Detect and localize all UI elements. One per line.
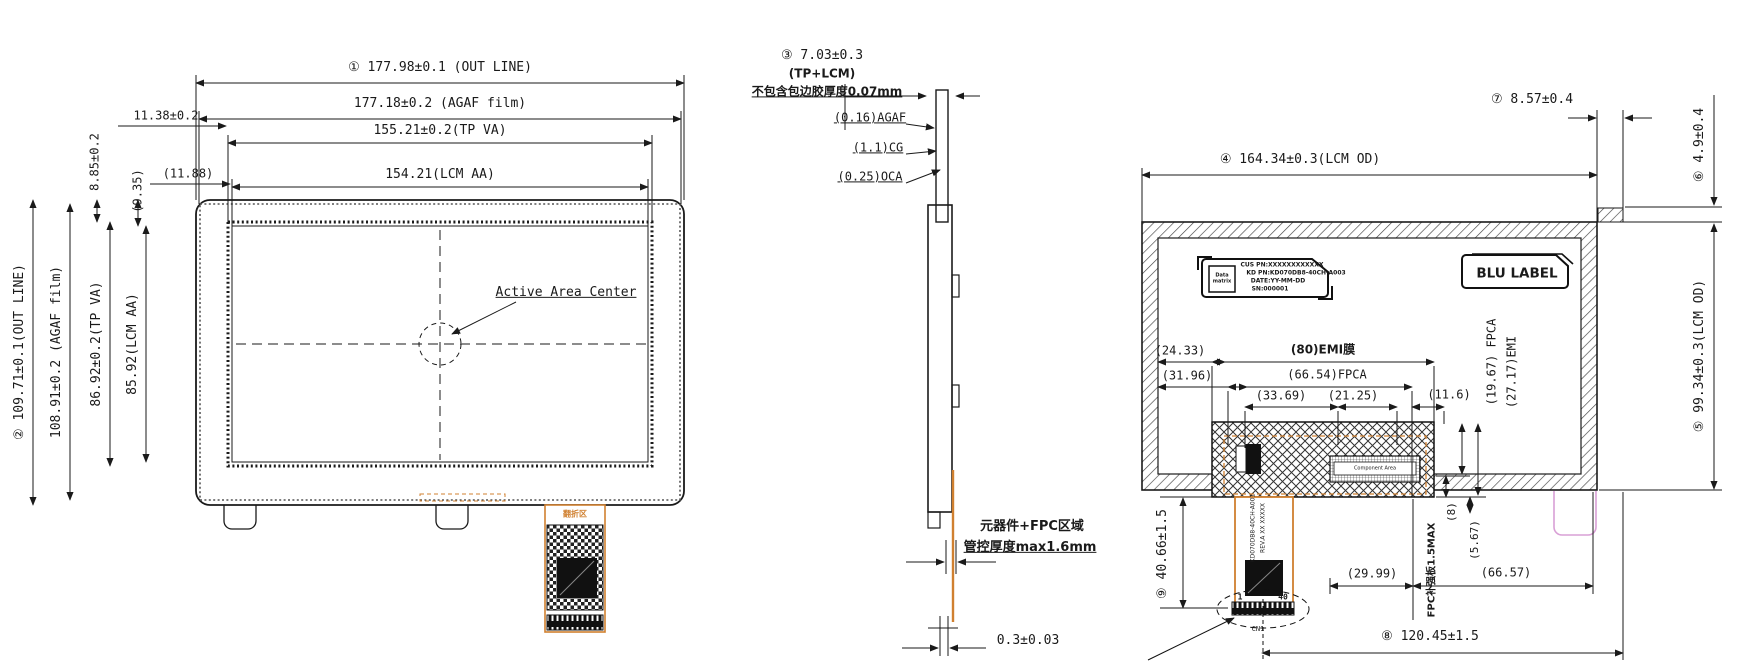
dim-emi-height: (27.17)EMI bbox=[1505, 336, 1518, 408]
fpc-zone-note-line1: 元器件+FPC区域 bbox=[980, 520, 1084, 534]
dim-back-fpc-offset: ⑧ 120.45±1.5 bbox=[1381, 630, 1479, 644]
dim-front-tpva-width: 155.21±0.2(TP VA) bbox=[373, 124, 506, 138]
dim-fpca-seg3: (11.6) bbox=[1427, 388, 1470, 401]
dim-back-bottom-seg2: (66.57) bbox=[1481, 566, 1532, 579]
dim-front-lcmaa-width: 154.21(LCM AA) bbox=[385, 168, 495, 182]
dim-front-agaf-width: 177.18±0.2 (AGAF film) bbox=[354, 97, 526, 111]
back-pink-tab bbox=[1554, 491, 1596, 535]
engineering-drawing-canvas: ① 177.98±0.1 (OUT LINE) 177.18±0.2 (AGAF… bbox=[0, 0, 1746, 665]
dim-back-lcm-od-height: ⑤ 99.34±0.3(LCM OD) bbox=[1693, 280, 1707, 433]
dim-fpca-seg2: (21.25) bbox=[1328, 389, 1379, 402]
stack-agaf-label: (0.16)AGAF bbox=[834, 111, 906, 124]
dim-front-aa-left-margin: (11.88) bbox=[163, 167, 214, 180]
dim-side-thickness: ③ 7.03±0.3 bbox=[781, 49, 863, 63]
label-cus-pn: CUS PN:XXXXXXXXXXXX bbox=[1240, 263, 1323, 270]
dim-front-outline-width: ① 177.98±0.1 (OUT LINE) bbox=[348, 61, 532, 75]
blu-label-text: BLU LABEL bbox=[1476, 267, 1557, 282]
fpc-zone-note-line2: 管控厚度max1.6mm bbox=[964, 541, 1097, 555]
datamatrix-placeholder: Data matrix bbox=[1210, 274, 1234, 285]
dim-back-lcm-od-width: ④ 164.34±0.3(LCM OD) bbox=[1220, 153, 1380, 167]
stack-oca-label: (0.25)OCA bbox=[837, 170, 902, 183]
dim-side-thickness-scope: (TP+LCM) bbox=[789, 67, 855, 80]
front-view-outline bbox=[196, 200, 684, 529]
side-view-profile bbox=[928, 90, 959, 628]
label-date: DATE:YY-MM-DD bbox=[1251, 279, 1305, 286]
stack-cg-label: (1.1)CG bbox=[853, 141, 904, 154]
dim-front-left-margin: 11.38±0.2 bbox=[133, 109, 198, 122]
back-fpc-revision: REV.A XX XXXXX bbox=[1261, 503, 1268, 553]
dim-front-lcmaa-height: 85.92(LCM AA) bbox=[126, 293, 140, 395]
dim-fpca-height: (19.67) FPCA bbox=[1485, 319, 1498, 406]
dim-emi-film-width: (80)EMI膜 bbox=[1291, 343, 1355, 356]
connector-cn1-label: CN1 bbox=[1252, 626, 1265, 634]
dim-gap-5-67: (5.67) bbox=[1469, 520, 1481, 560]
fpc-stiffener-note: FPC补强板1.5MAX bbox=[1427, 523, 1438, 618]
component-area-label: Component Area bbox=[1354, 466, 1396, 472]
dim-back-fpc-length: ⑨ 40.66±1.5 bbox=[1156, 509, 1170, 599]
dim-front-outline-height: ② 109.71±0.1(OUT LINE) bbox=[13, 264, 27, 440]
dim-front-agaf-height: 108.91±0.2 (AGAF film) bbox=[50, 266, 64, 438]
dim-gap-8: (8) bbox=[1446, 502, 1458, 522]
label-kd-pn: KD PN:KD070DB8-40CH-A003 bbox=[1246, 271, 1345, 278]
dim-fpca-seg1: (33.69) bbox=[1256, 389, 1307, 402]
dim-fpca-left-offset: (31.96) bbox=[1162, 369, 1213, 382]
dim-front-tpva-height: 86.92±0.2(TP VA) bbox=[90, 281, 104, 406]
active-area-center-label: Active Area Center bbox=[496, 286, 637, 300]
connector-pin1-label: 1 bbox=[1238, 594, 1243, 603]
back-fpc-tail bbox=[1148, 497, 1309, 660]
front-fpc-fold-label: 翻折区 bbox=[563, 511, 587, 520]
dim-back-tab-height: ⑥ 4.9±0.4 bbox=[1693, 108, 1707, 182]
connector-pin40-label: 40 bbox=[1278, 594, 1288, 603]
dim-front-aa-top-margin: (9.35) bbox=[131, 169, 144, 212]
dim-back-tab-width: ⑦ 8.57±0.4 bbox=[1491, 93, 1573, 107]
side-thickness-note: 不包含包边胶厚度0.07mm bbox=[752, 85, 903, 98]
dim-emi-left-offset: (24.33) bbox=[1155, 344, 1206, 357]
dim-back-bottom-seg1: (29.99) bbox=[1347, 567, 1398, 580]
dim-front-top-margin: 8.85±0.2 bbox=[88, 133, 101, 191]
label-sn: SN:000001 bbox=[1252, 287, 1289, 294]
back-fpc-part-number: KD070DB8-40CH-A001 bbox=[1251, 494, 1258, 563]
front-fpc-tail bbox=[545, 505, 605, 632]
dim-fpca-width: (66.54)FPCA bbox=[1287, 368, 1366, 381]
dim-side-glass-step: 0.3±0.03 bbox=[997, 634, 1060, 648]
